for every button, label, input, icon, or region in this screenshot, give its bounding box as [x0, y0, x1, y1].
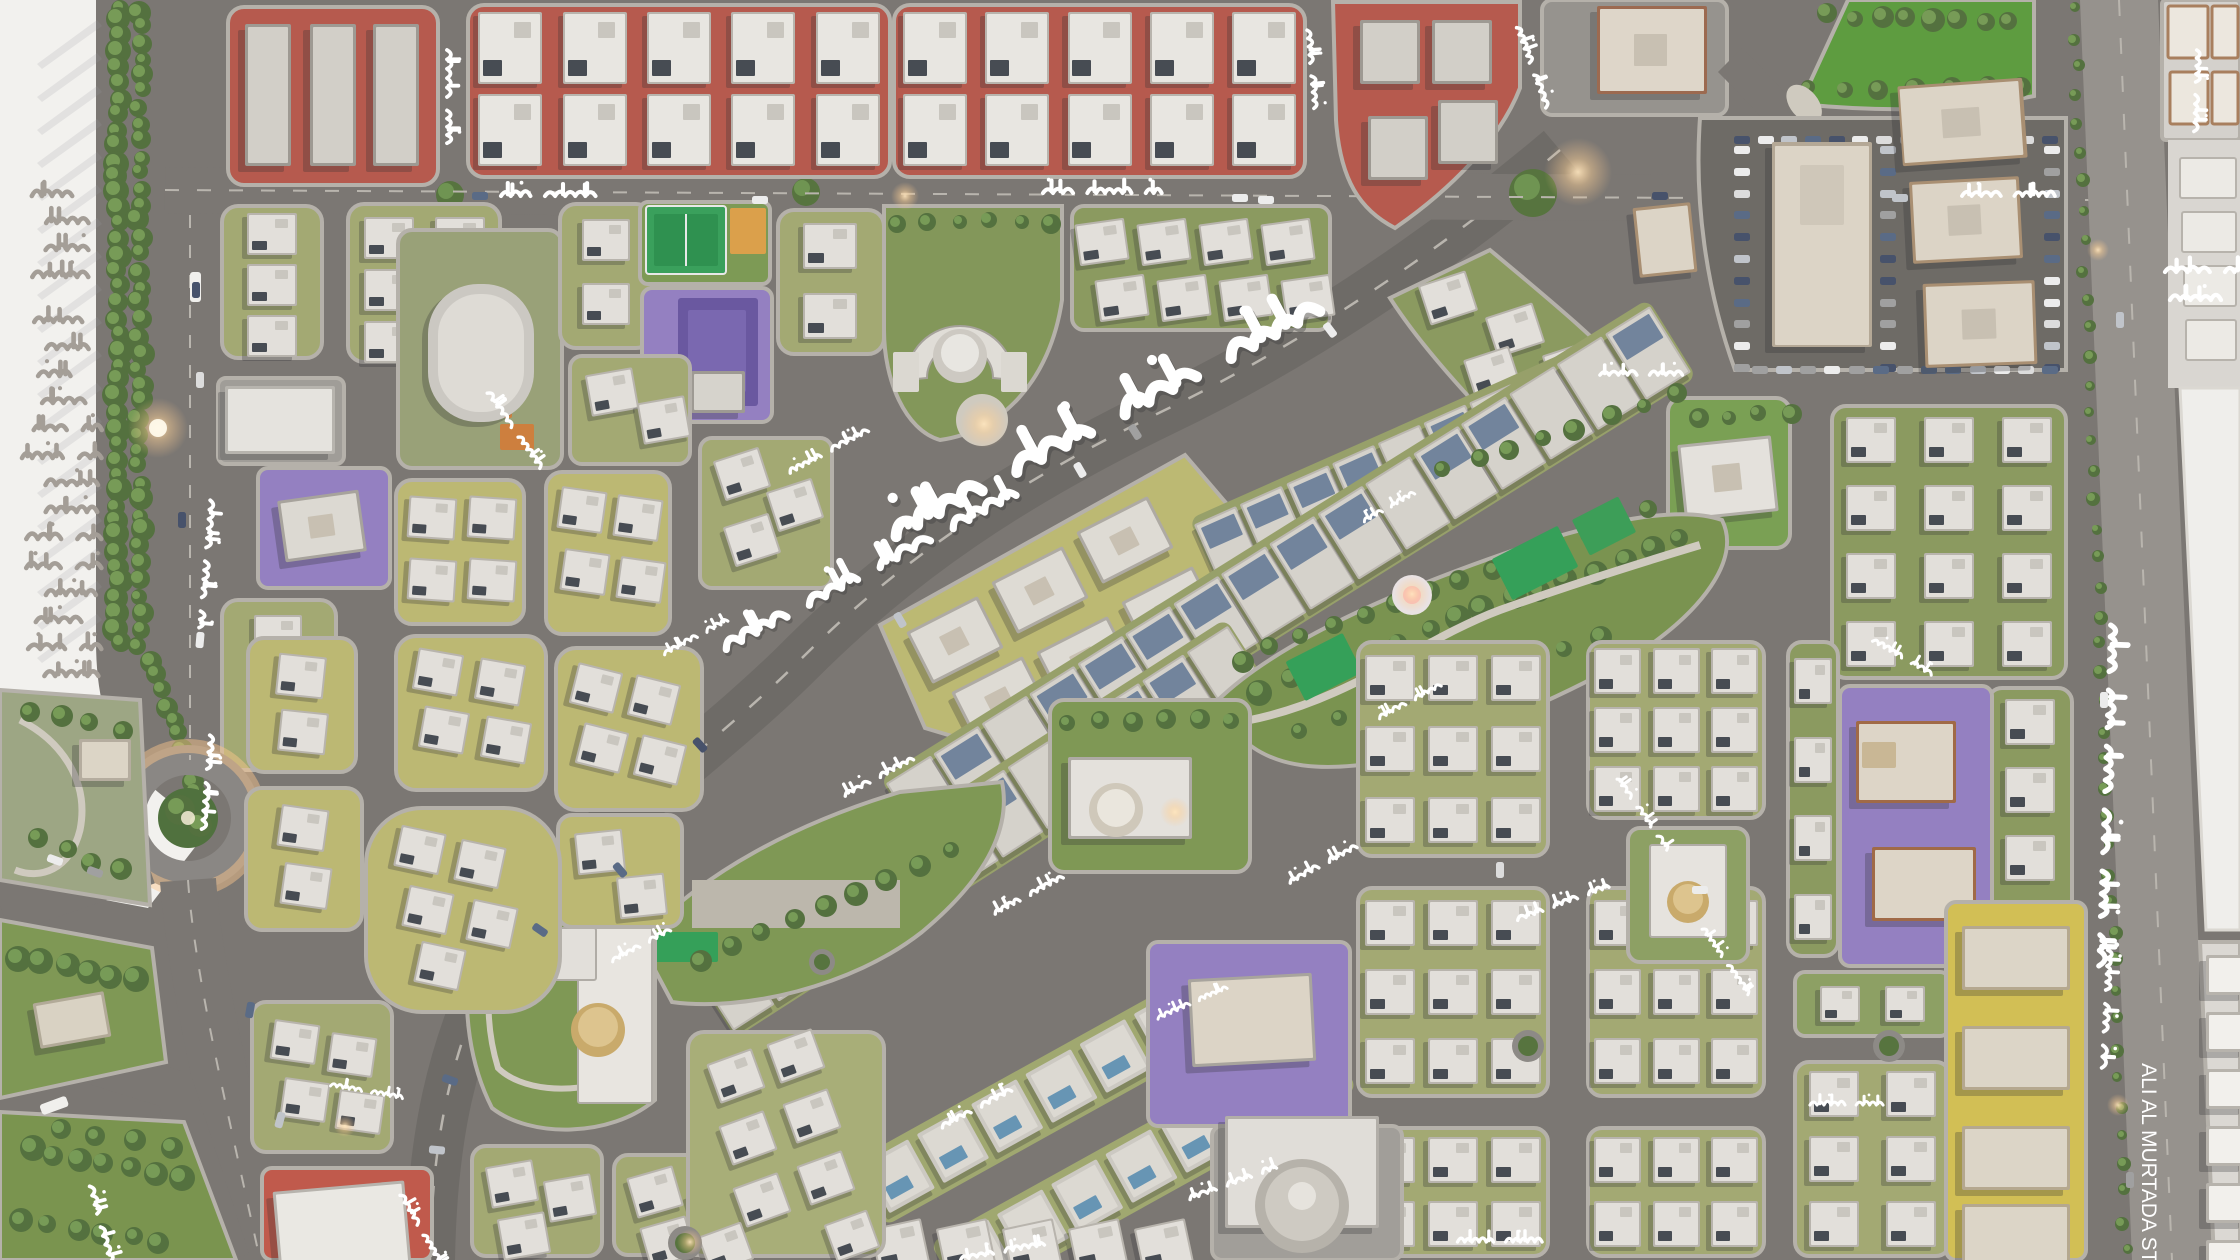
svg-text:ALI AL MURTADA ST.: ALI AL MURTADA ST. — [2137, 1063, 2160, 1260]
